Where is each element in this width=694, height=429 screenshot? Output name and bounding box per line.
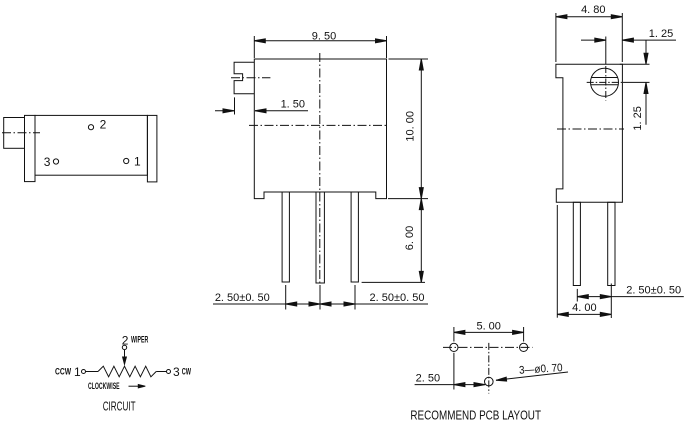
svg-text:WIPER: WIPER (131, 335, 149, 345)
svg-text:2. 50: 2. 50 (416, 372, 440, 384)
svg-text:3: 3 (44, 155, 51, 169)
svg-text:5. 00: 5. 00 (476, 321, 500, 333)
svg-text:RECOMMEND PCB LAYOUT: RECOMMEND PCB LAYOUT (410, 408, 541, 423)
svg-text:1. 25: 1. 25 (649, 28, 673, 40)
svg-text:CCW: CCW (55, 367, 71, 377)
svg-text:1: 1 (74, 365, 81, 379)
svg-text:6. 00: 6. 00 (404, 226, 416, 250)
svg-text:9. 50: 9. 50 (312, 31, 336, 43)
svg-text:2. 50±0. 50: 2. 50±0. 50 (370, 292, 425, 304)
svg-text:3: 3 (173, 365, 180, 379)
svg-text:4. 00: 4. 00 (572, 302, 596, 314)
svg-text:1. 50: 1. 50 (281, 98, 305, 110)
svg-text:2. 50±0. 50: 2. 50±0. 50 (215, 292, 270, 304)
svg-text:1: 1 (134, 154, 141, 168)
svg-text:CW: CW (182, 366, 192, 376)
svg-text:2. 50±0. 50: 2. 50±0. 50 (626, 285, 681, 297)
svg-text:CLOCKWISE: CLOCKWISE (88, 381, 120, 391)
svg-text:1. 25: 1. 25 (632, 106, 644, 130)
svg-text:4. 80: 4. 80 (581, 4, 605, 16)
svg-text:2: 2 (100, 118, 107, 132)
svg-text:3—ø0. 70: 3—ø0. 70 (519, 362, 563, 377)
svg-text:2: 2 (122, 333, 129, 347)
svg-text:CIRCUIT: CIRCUIT (103, 399, 136, 414)
svg-text:10. 00: 10. 00 (405, 111, 417, 142)
